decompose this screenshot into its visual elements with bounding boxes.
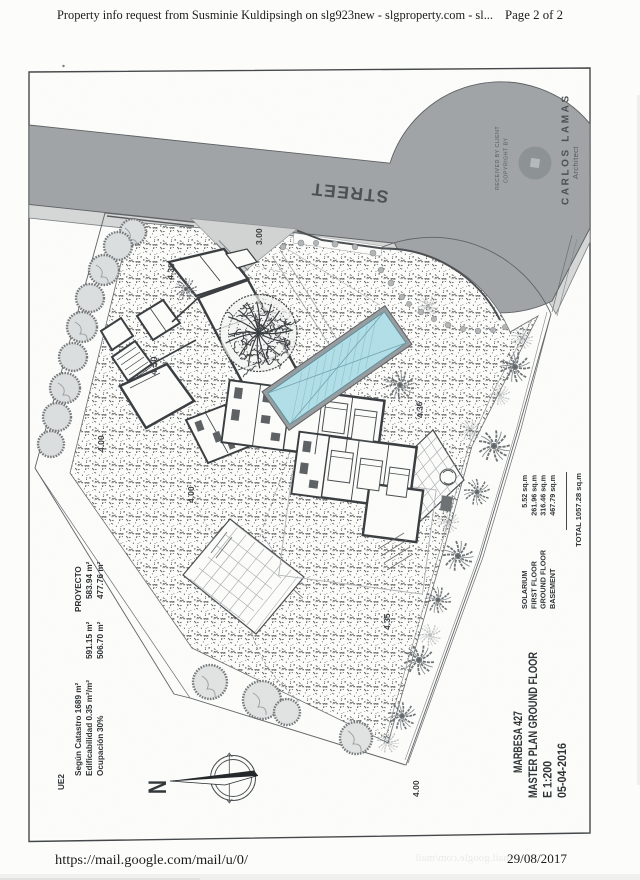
svg-text:29/08/2017: 29/08/2017 xyxy=(507,851,567,866)
svg-text:Property info request from Sus: Property info request from Susminie Kuld… xyxy=(57,7,493,22)
svg-text:Page 2 of 2: Page 2 of 2 xyxy=(505,7,563,22)
svg-text:https://mail.google.com/mail/u: https://mail.google.com/mail/u/0/ xyxy=(55,852,248,867)
svg-text:mail.google.com/mail: mail.google.com/mail xyxy=(415,852,512,864)
